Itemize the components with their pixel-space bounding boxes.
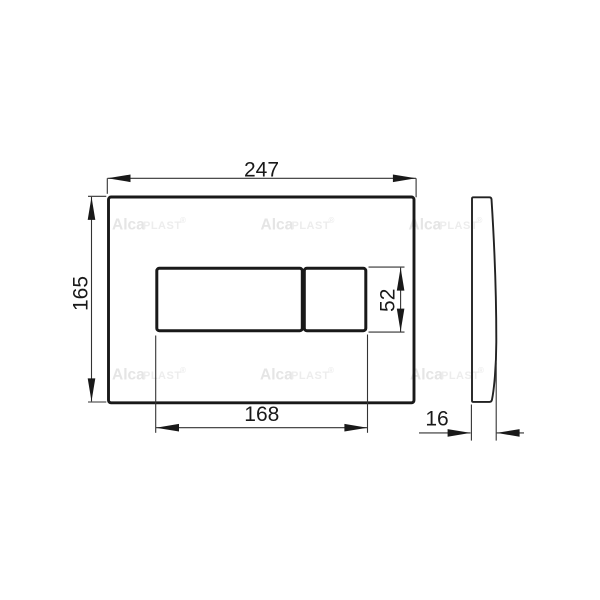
- svg-text:®: ®: [329, 216, 335, 225]
- svg-text:®: ®: [180, 216, 186, 225]
- svg-text:PLAST: PLAST: [441, 370, 480, 382]
- svg-text:®: ®: [180, 366, 186, 375]
- svg-text:168: 168: [244, 403, 279, 426]
- svg-text:PLAST: PLAST: [292, 220, 331, 232]
- svg-text:®: ®: [478, 366, 484, 375]
- svg-text:247: 247: [244, 158, 279, 181]
- svg-text:PLAST: PLAST: [143, 220, 182, 232]
- svg-text:®: ®: [328, 366, 334, 375]
- svg-text:®: ®: [477, 216, 483, 225]
- svg-text:52: 52: [377, 289, 400, 312]
- svg-text:Alca: Alca: [260, 366, 293, 383]
- svg-text:PLAST: PLAST: [291, 370, 330, 382]
- svg-text:PLAST: PLAST: [143, 370, 182, 382]
- svg-text:Alca: Alca: [112, 216, 145, 233]
- svg-text:165: 165: [70, 276, 93, 311]
- svg-text:16: 16: [425, 407, 448, 430]
- svg-text:Alca: Alca: [112, 366, 145, 383]
- svg-text:Alca: Alca: [261, 216, 294, 233]
